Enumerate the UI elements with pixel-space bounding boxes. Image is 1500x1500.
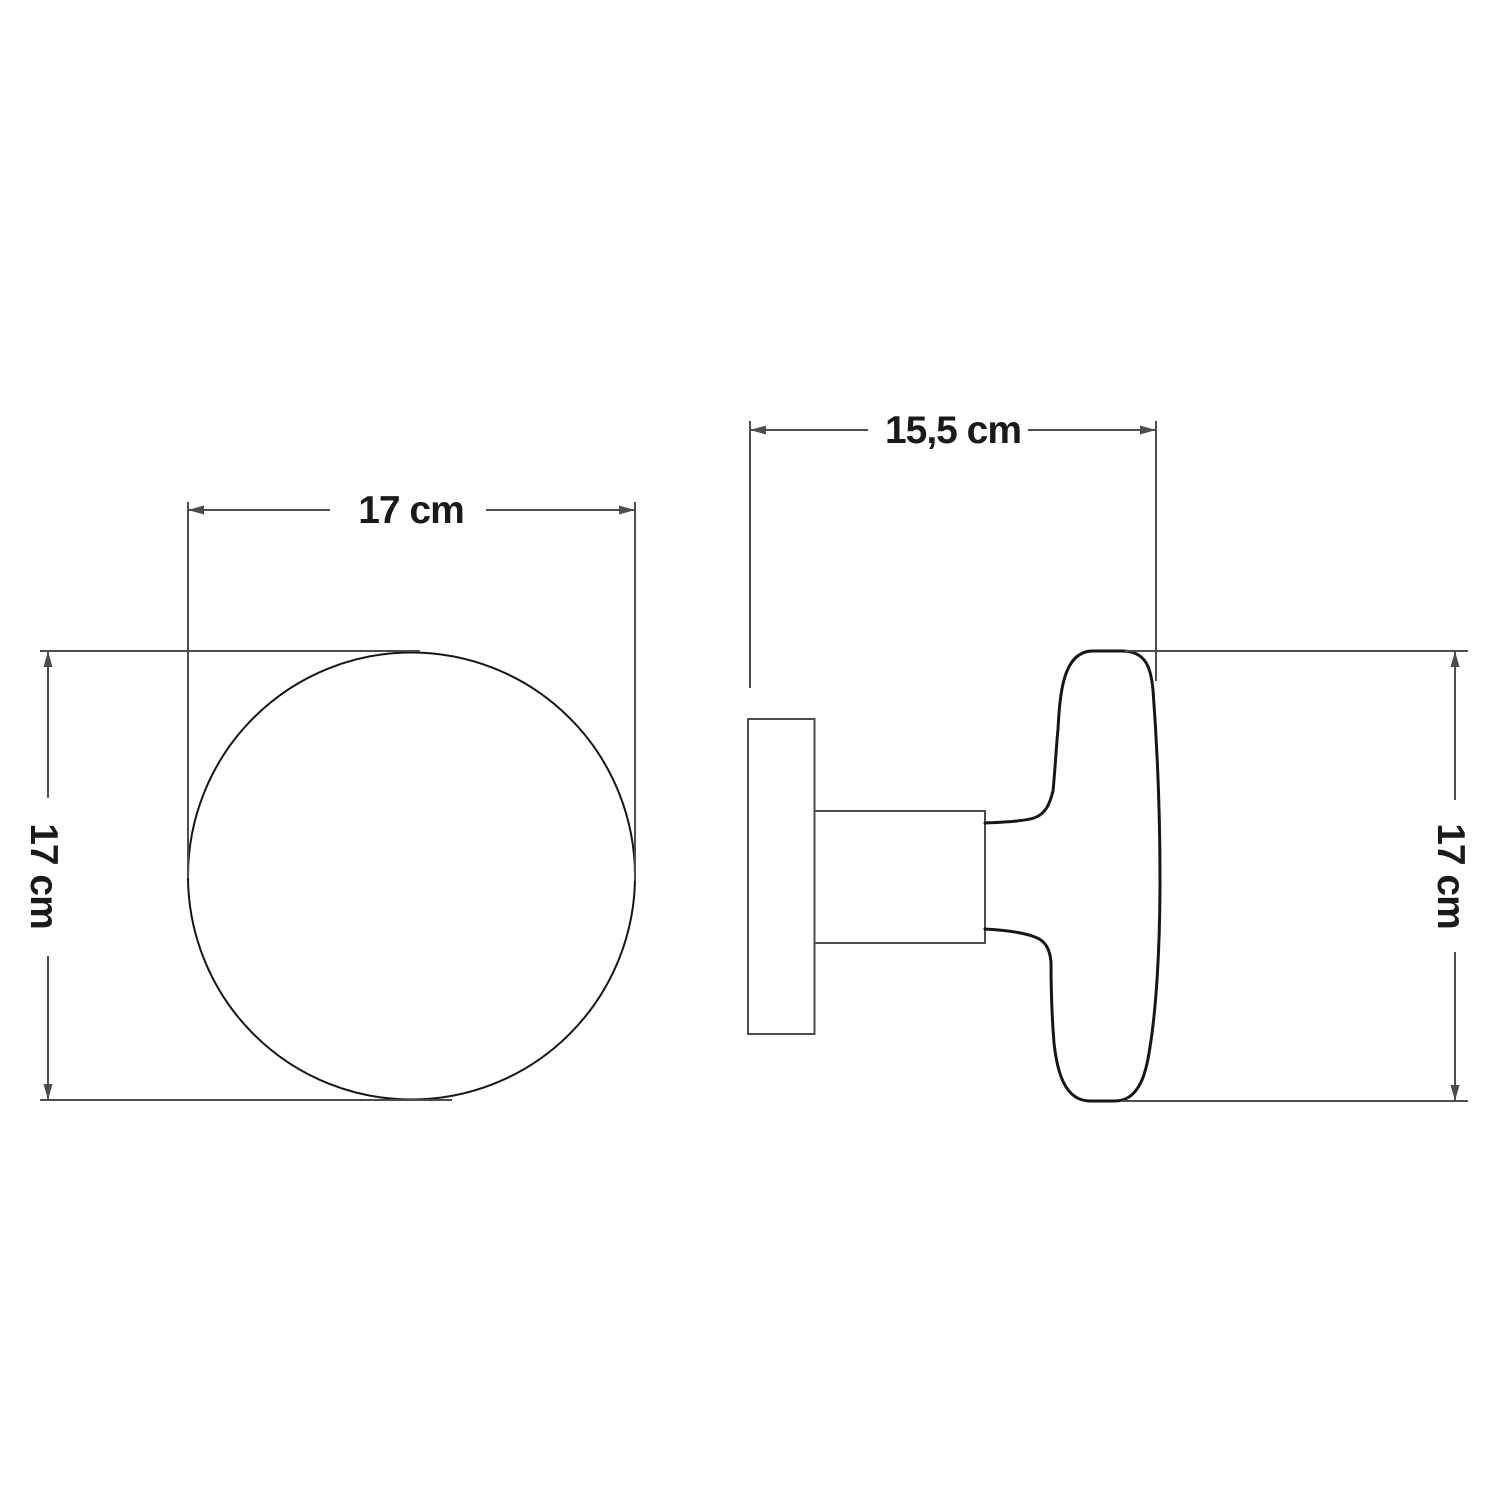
front-width-dimension [188,502,635,881]
front-view: 17 cm 17 cm [22,489,635,1100]
side-height-label: 17 cm [1429,823,1472,929]
arrow-down-icon [1451,1085,1460,1101]
side-view-backplate [748,719,815,1034]
side-view-knob-profile [985,651,1160,1101]
arrow-left-icon [188,506,204,515]
arrow-up-icon [1451,651,1460,667]
front-width-label: 17 cm [358,489,464,532]
front-view-circle [188,653,635,1100]
side-depth-label: 15,5 cm [885,409,1021,452]
arrow-right-icon [619,506,635,515]
front-height-label: 17 cm [22,823,65,929]
knob-dimension-drawing: 17 cm 17 cm [0,0,1500,1500]
side-depth-dimension [750,421,1156,688]
technical-drawing-page: 17 cm 17 cm [0,0,1500,1500]
arrow-right-icon [1140,426,1156,435]
front-height-dimension [40,651,452,1100]
side-height-dimension [1122,651,1468,1101]
arrow-up-icon [44,651,53,667]
side-view: 15,5 cm 17 cm [748,409,1472,1101]
arrow-down-icon [44,1084,53,1100]
side-view-stem [815,811,986,943]
arrow-left-icon [750,426,766,435]
